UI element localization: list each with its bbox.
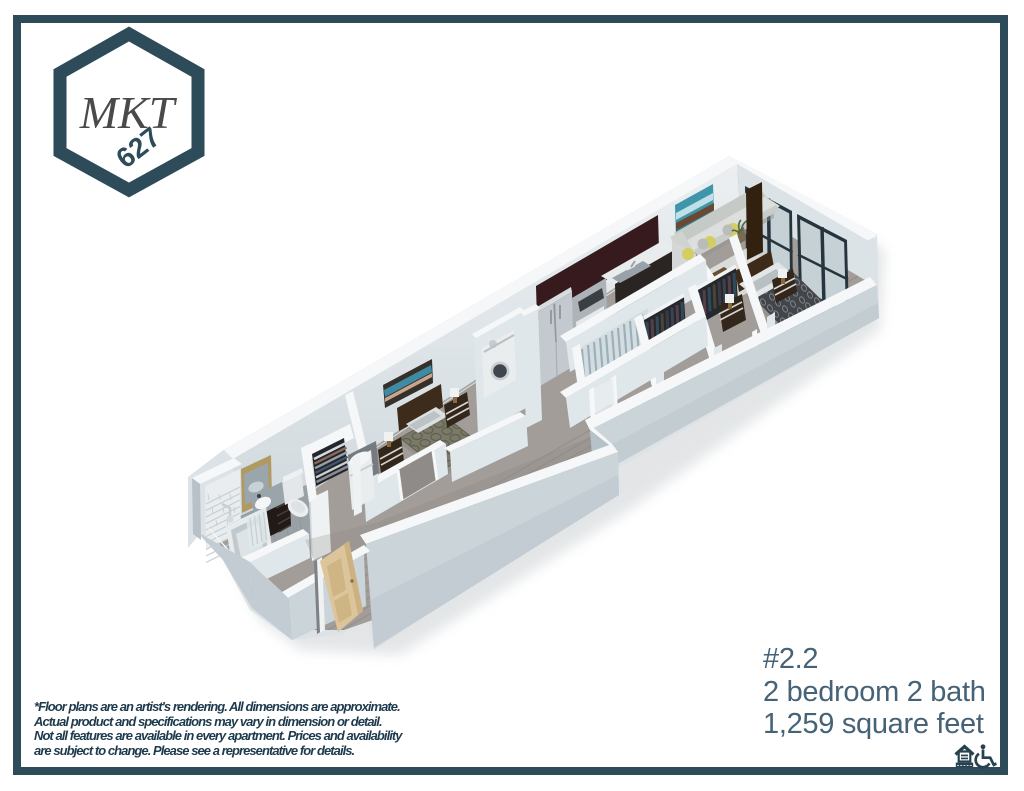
svg-text:MKT: MKT — [79, 87, 178, 138]
